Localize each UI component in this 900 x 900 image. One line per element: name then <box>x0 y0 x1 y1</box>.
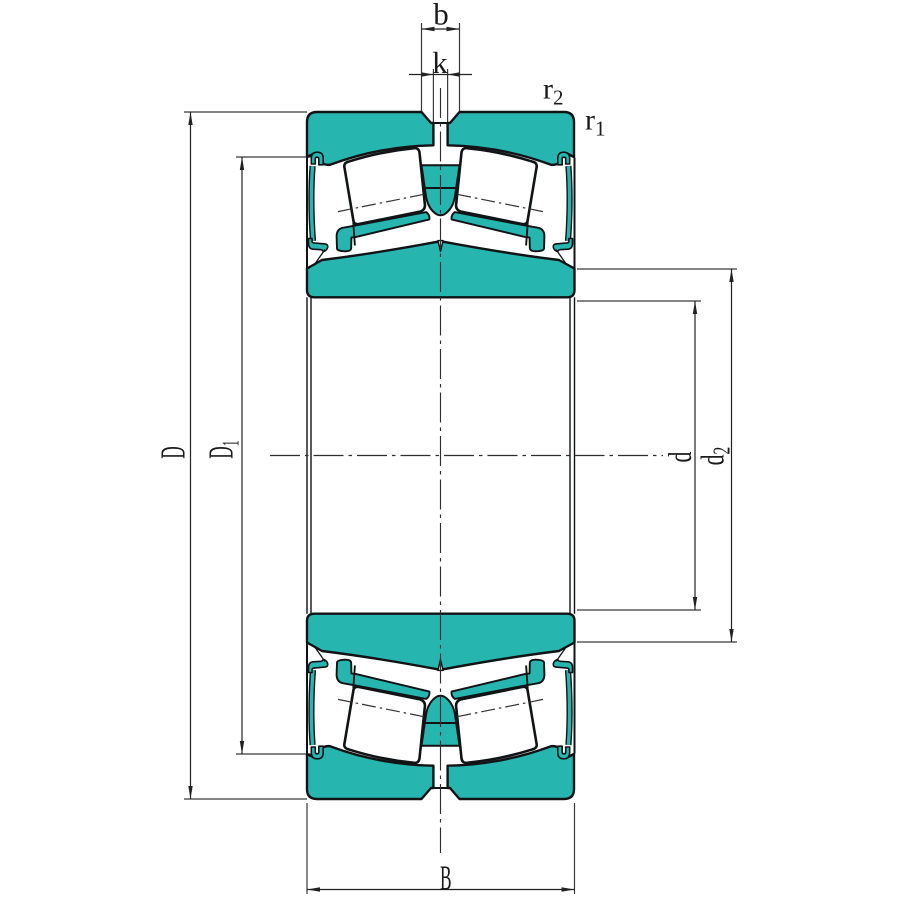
svg-text:D: D <box>154 446 192 458</box>
svg-text:B: B <box>440 859 452 897</box>
svg-text:k: k <box>432 45 448 80</box>
svg-text:b: b <box>433 0 449 32</box>
svg-text:d: d <box>663 452 700 463</box>
